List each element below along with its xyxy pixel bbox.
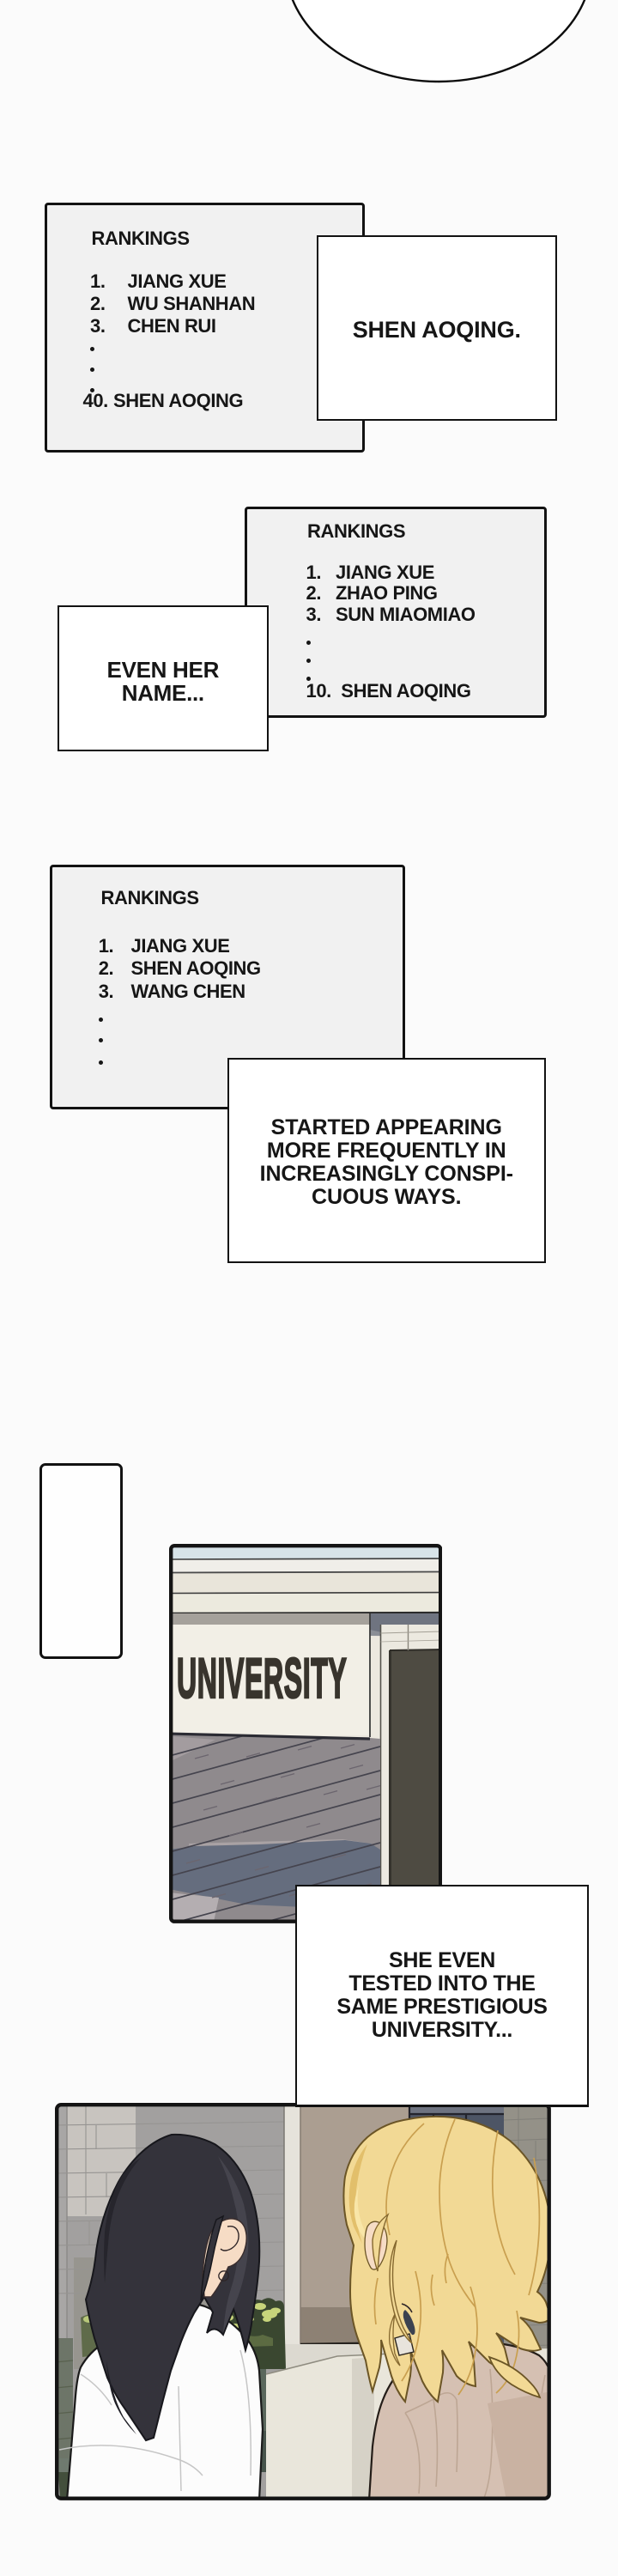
svg-text:UNIVERSITY: UNIVERSITY xyxy=(177,1646,347,1710)
